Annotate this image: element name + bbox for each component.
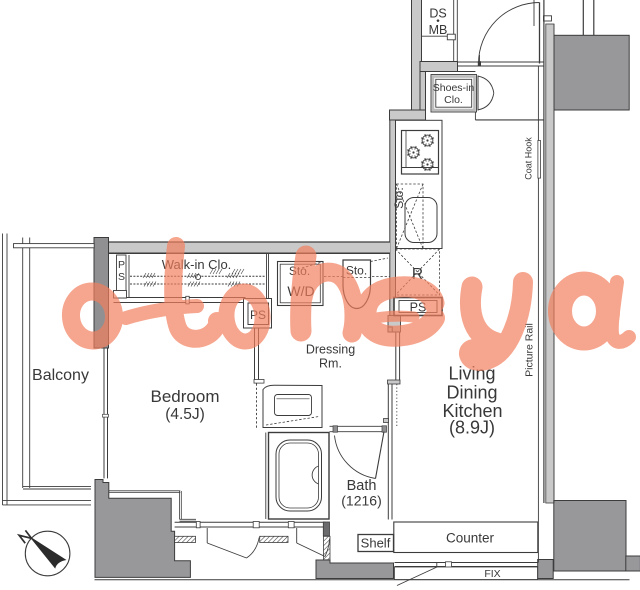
svg-text:P: P [118, 259, 125, 271]
svg-text:Coat Hook: Coat Hook [524, 137, 534, 180]
svg-text:Picture Rail: Picture Rail [524, 323, 536, 377]
svg-text:Clo.: Clo. [444, 94, 463, 106]
svg-text:Dressing: Dressing [306, 343, 355, 357]
svg-text:Dining: Dining [446, 383, 497, 403]
svg-text:Counter: Counter [446, 531, 495, 546]
svg-text:(8.9J): (8.9J) [449, 418, 495, 438]
svg-text:Sto.: Sto. [392, 187, 406, 208]
svg-text:Shoes-in: Shoes-in [433, 82, 475, 94]
svg-text:MB: MB [429, 23, 448, 37]
svg-text:Rm.: Rm. [319, 357, 342, 371]
svg-text:Shelf: Shelf [361, 536, 391, 551]
svg-text:S: S [118, 271, 125, 283]
svg-text:(1216): (1216) [341, 493, 381, 509]
svg-text:Balcony: Balcony [32, 367, 89, 384]
svg-text:(4.5J): (4.5J) [165, 406, 205, 423]
svg-text:FIX: FIX [484, 568, 500, 580]
svg-text:Bedroom: Bedroom [151, 387, 220, 406]
